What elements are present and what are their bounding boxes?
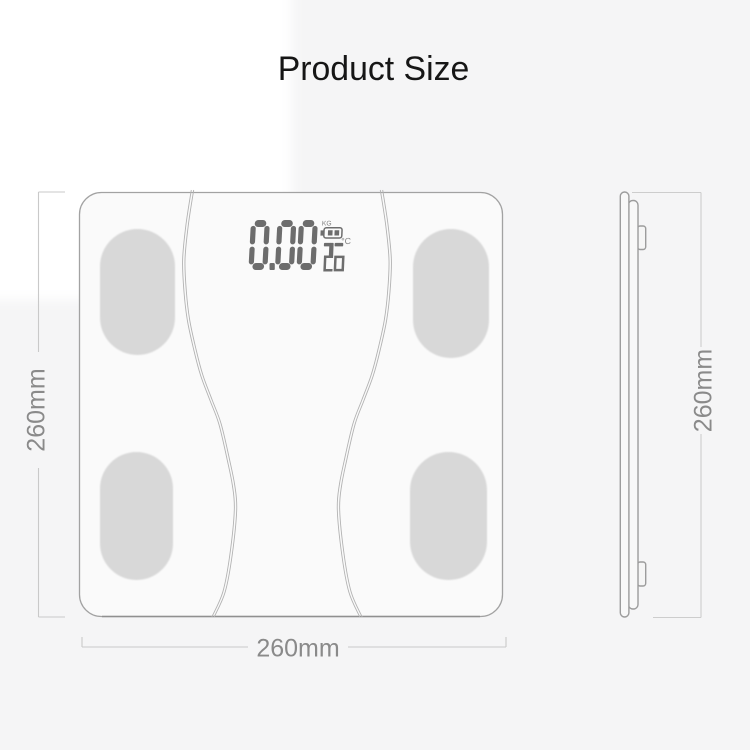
svg-text:260mm: 260mm	[23, 368, 51, 451]
svg-text:Product Size: Product Size	[278, 50, 470, 88]
svg-text:260mm: 260mm	[690, 349, 718, 432]
svg-text:KG: KG	[322, 221, 332, 228]
svg-text:260mm: 260mm	[256, 635, 339, 663]
